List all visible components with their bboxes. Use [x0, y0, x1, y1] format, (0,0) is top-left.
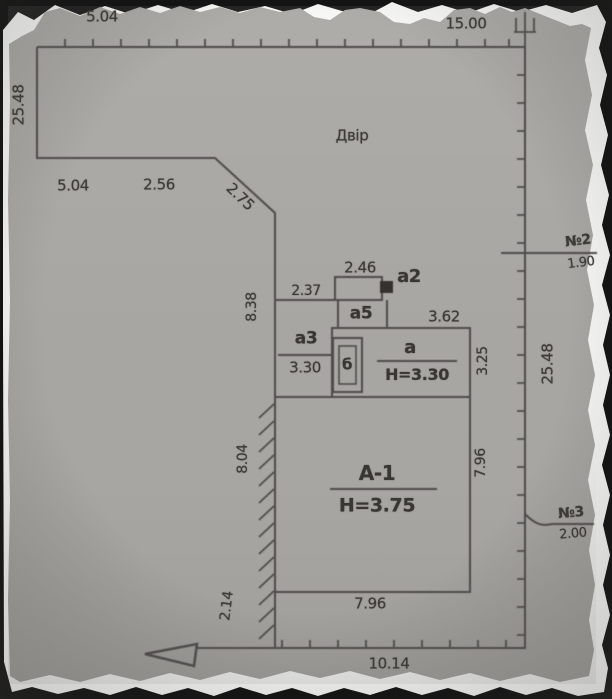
dim-a1-right: 7.96 [474, 448, 488, 478]
a2-solid-marker [380, 281, 393, 293]
dim-left-mid: 8.38 [245, 292, 259, 322]
plot-boundary [37, 47, 525, 648]
yard-label: Двір [336, 129, 369, 144]
dim-bottom: 10.14 [369, 657, 410, 672]
direction-arrow-icon [145, 644, 197, 666]
dim-left-lower: 2.14 [218, 590, 236, 621]
label-point3: №3 [558, 505, 585, 521]
value-a1-height: Н=3.75 [339, 497, 415, 516]
dim-top-left: 5.04 [86, 10, 118, 25]
label-a2: а2 [397, 268, 421, 286]
dim-a-width: 3.62 [428, 310, 460, 325]
dim-a2-width: 2.46 [344, 261, 376, 276]
hatch-marks [259, 404, 274, 639]
value-point2: 1.90 [567, 255, 596, 271]
plan-linework [0, 0, 612, 699]
point3-leader [525, 514, 552, 525]
label-a1: А-1 [359, 463, 396, 483]
dim-step-2: 2.56 [143, 178, 175, 193]
dim-right-boundary: 25.48 [541, 344, 556, 385]
scanned-site-plan: 5.04 15.00 25.48 5.04 2.56 2.75 Двір 8.3… [0, 0, 612, 699]
boundary-ticks-right [517, 75, 525, 635]
building-a2-outline [335, 277, 382, 300]
label-b: б [342, 358, 352, 373]
boundary-ticks-bottom [282, 640, 506, 648]
boundary-ticks-top [65, 39, 509, 47]
dim-step-1: 5.04 [57, 179, 89, 194]
dim-left-upper: 25.48 [12, 85, 27, 126]
dim-a1-bottom: 7.96 [354, 597, 386, 612]
dim-annex-offset: 2.37 [291, 284, 321, 298]
label-a5: а5 [350, 306, 373, 323]
dim-top-right: 15.00 [446, 17, 487, 32]
label-a: а [404, 339, 416, 357]
value-point3: 2.00 [559, 526, 587, 541]
dim-a1-left: 8.04 [236, 444, 250, 474]
value-a-height: Н=3.30 [385, 367, 449, 383]
dim-a-right: 3.25 [476, 346, 490, 376]
gate-icon [514, 12, 536, 47]
label-a3: а3 [295, 331, 318, 348]
value-a3: 3.30 [289, 361, 321, 376]
label-point2: №2 [564, 232, 591, 249]
